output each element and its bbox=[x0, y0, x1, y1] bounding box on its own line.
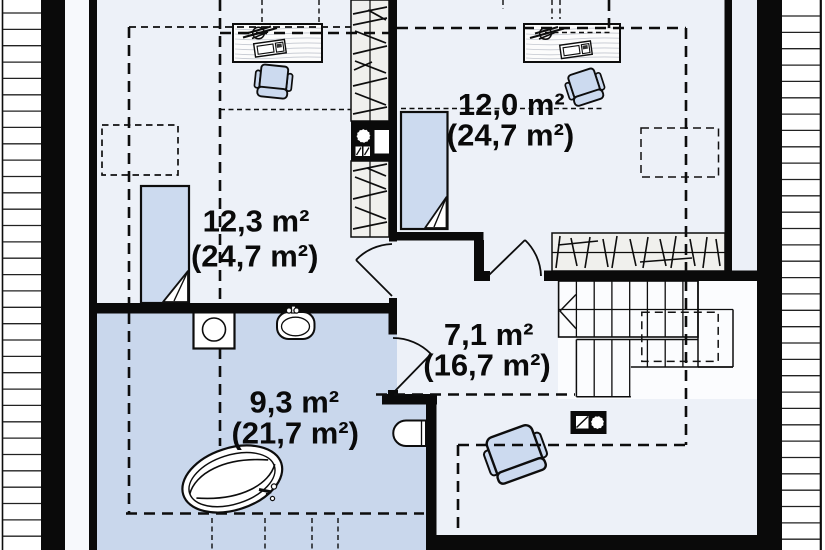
svg-text:(24,7 m²): (24,7 m²) bbox=[191, 238, 318, 273]
svg-text:(21,7 m²): (21,7 m²) bbox=[231, 415, 358, 450]
svg-text:(16,7 m²): (16,7 m²) bbox=[423, 348, 550, 383]
svg-text:12,3 m²: 12,3 m² bbox=[203, 204, 310, 239]
svg-text:9,3 m²: 9,3 m² bbox=[249, 385, 339, 420]
svg-text:(24,7 m²): (24,7 m²) bbox=[447, 118, 574, 153]
